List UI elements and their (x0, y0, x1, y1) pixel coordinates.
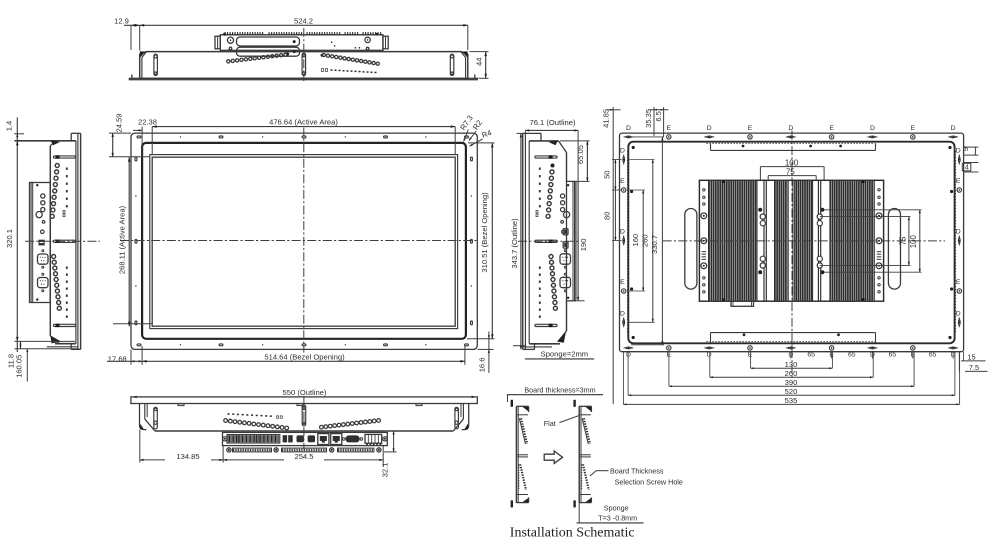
svg-text:D: D (870, 125, 875, 132)
svg-text:268.11 (Active Area): 268.11 (Active Area) (117, 205, 126, 274)
svg-text:E: E (748, 125, 753, 132)
svg-text:22.38: 22.38 (138, 118, 157, 127)
svg-text:254.5: 254.5 (294, 452, 313, 461)
svg-text:520: 520 (785, 387, 798, 396)
svg-text:343.7 (Outline): 343.7 (Outline) (510, 218, 519, 269)
svg-text:260: 260 (785, 369, 798, 378)
svg-text:76.1 (Outline): 76.1 (Outline) (529, 118, 575, 127)
svg-text:32.1: 32.1 (380, 463, 389, 478)
svg-text:Board Thickness: Board Thickness (610, 467, 664, 476)
svg-text:T=3 -0.8mm: T=3 -0.8mm (598, 513, 637, 522)
svg-text:35.35: 35.35 (644, 109, 653, 128)
svg-text:65: 65 (889, 352, 897, 359)
svg-text:Board thickness=3mm: Board thickness=3mm (524, 385, 595, 394)
svg-text:D: D (626, 352, 631, 359)
svg-text:9: 9 (961, 147, 970, 151)
svg-text:Sponge: Sponge (604, 504, 629, 513)
svg-text:310.51 (Bezel Opening): 310.51 (Bezel Opening) (480, 192, 489, 273)
svg-text:130: 130 (785, 360, 798, 369)
svg-text:134.85: 134.85 (176, 452, 199, 461)
svg-text:1.4: 1.4 (4, 121, 13, 132)
svg-text:D: D (620, 229, 625, 236)
svg-text:Sponge=2mm: Sponge=2mm (541, 350, 589, 359)
svg-text:17.68: 17.68 (108, 355, 127, 364)
svg-text:50: 50 (602, 170, 611, 178)
svg-text:E: E (956, 279, 961, 286)
svg-text:41.85: 41.85 (602, 109, 611, 128)
svg-text:E: E (620, 178, 625, 185)
svg-text:65.05: 65.05 (576, 145, 585, 164)
svg-text:7.5: 7.5 (969, 363, 979, 372)
svg-text:190: 190 (579, 239, 588, 252)
svg-text:Installation Schematic: Installation Schematic (510, 526, 635, 541)
svg-text:12.9: 12.9 (114, 16, 129, 25)
svg-text:320.1: 320.1 (5, 229, 14, 248)
svg-text:R7.3: R7.3 (458, 114, 475, 132)
svg-text:E: E (956, 178, 961, 185)
svg-text:E: E (620, 279, 625, 286)
svg-text:D: D (707, 352, 712, 359)
svg-text:65: 65 (807, 352, 815, 359)
svg-text:15: 15 (967, 352, 975, 361)
svg-text:260: 260 (640, 234, 649, 247)
svg-text:E: E (829, 125, 834, 132)
svg-text:D: D (620, 311, 625, 318)
svg-text:Selection Screw Hole: Selection Screw Hole (615, 477, 683, 486)
svg-text:476.64 (Active Area): 476.64 (Active Area) (269, 118, 338, 127)
svg-text:44: 44 (475, 58, 484, 66)
svg-text:65: 65 (848, 352, 856, 359)
svg-text:D: D (626, 125, 631, 132)
svg-text:100: 100 (785, 158, 799, 167)
svg-text:390: 390 (785, 378, 798, 387)
svg-text:24.59: 24.59 (114, 113, 123, 132)
svg-text:E: E (667, 125, 672, 132)
svg-text:330.7: 330.7 (650, 235, 659, 254)
svg-text:75: 75 (898, 236, 907, 245)
svg-text:524.2: 524.2 (294, 16, 313, 25)
svg-text:160: 160 (631, 234, 640, 247)
svg-text:80: 80 (602, 212, 611, 220)
svg-text:16.6: 16.6 (478, 358, 487, 373)
svg-text:65: 65 (929, 352, 937, 359)
svg-text:D: D (620, 148, 625, 155)
svg-text:R4: R4 (481, 128, 493, 140)
svg-text:6.5: 6.5 (654, 111, 663, 122)
svg-text:D: D (951, 125, 956, 132)
svg-text:535: 535 (785, 396, 798, 405)
svg-text:D: D (956, 229, 961, 236)
svg-text:Flat: Flat (544, 419, 556, 428)
svg-text:160.05: 160.05 (14, 355, 23, 378)
svg-text:D: D (956, 148, 961, 155)
svg-text:514.64 (Bezel Opening): 514.64 (Bezel Opening) (264, 352, 345, 361)
svg-text:100: 100 (909, 235, 918, 249)
svg-text:D: D (707, 125, 712, 132)
svg-text:550 (Outline): 550 (Outline) (283, 388, 327, 397)
svg-text:D: D (956, 311, 961, 318)
svg-text:D: D (788, 125, 793, 132)
svg-text:E: E (911, 125, 916, 132)
